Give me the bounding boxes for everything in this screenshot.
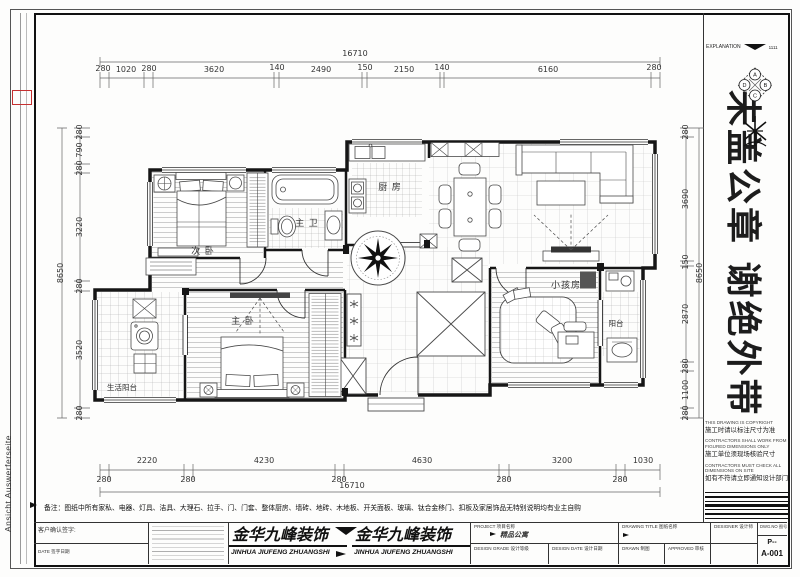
brand-triangle-icon (335, 527, 357, 535)
brand-name-en-2: JINHUA JIUFENG ZHUANGSHI (354, 550, 453, 557)
design-grade-label: DESIGN GRADE 设计等级 (474, 547, 529, 552)
compass-letter-d: D (743, 83, 747, 89)
dim-label: 4630 (412, 457, 432, 465)
drawing-title-label: DRAWING TITLE 图纸名称 (622, 525, 677, 530)
dim-label: 2150 (394, 66, 414, 74)
note-cn: 施工时请以标注尺寸为准 (705, 427, 788, 435)
orientation-diamond: A B C D (738, 68, 772, 102)
dim-label: 790 (76, 142, 84, 157)
room-label-master: 主 卧 (231, 317, 255, 326)
dim-label: 6160 (538, 66, 558, 74)
room-label-balcony: 阳台 (609, 320, 624, 328)
compass-letter-c: C (753, 94, 757, 100)
remark-triangle-icon (30, 502, 37, 508)
dim-label: 3200 (552, 457, 572, 465)
dim-label: 280 (96, 476, 111, 484)
designer-label: DESIGNER 设计师 (714, 525, 753, 530)
dwgno-value-2: A-001 (761, 549, 783, 558)
brand-name-cn-2: 金华九峰装饰 (355, 527, 451, 543)
client-sign-label: 客户确认签字: (38, 528, 76, 534)
dim-label: 280 (646, 64, 661, 72)
drawing-sheet: Ansicht Auswerferseite 未盖公章 谢绝外带 (0, 0, 800, 577)
explanation-code: 1111 (769, 45, 778, 50)
dim-label: 280 (682, 358, 690, 373)
date-label: DATE 签字日期 (38, 550, 70, 555)
approved-label: APPROVED 审核 (668, 547, 704, 552)
project-value: 精品公寓 (500, 532, 528, 539)
dim-label: 280 (95, 65, 110, 73)
note-en: CONTRACTORS MUST CHECK ALL DIMENSIONS ON… (705, 463, 788, 474)
dim-label: 280 (180, 476, 195, 484)
room-label-service-balcony: 生活阳台 (107, 384, 137, 392)
dim-label: 3520 (76, 340, 84, 360)
dim-label: 280 (682, 124, 690, 139)
drawing-title-triangle-icon (623, 533, 629, 537)
project-label: PROJECT 项目名称 (474, 525, 515, 530)
floor-plan-drawing: A B C D (0, 0, 800, 577)
project-triangle-icon (490, 532, 496, 536)
dim-label: 280 (76, 278, 84, 293)
room-label-bath: 主 卫 (295, 219, 319, 228)
dim-label: 1030 (633, 457, 653, 465)
dim-label: 280 (76, 160, 84, 175)
dim-label: 150 (682, 254, 690, 269)
dim-label: 2220 (137, 457, 157, 465)
explanation-label: EXPLANATION (706, 44, 741, 50)
compass-letter-a: A (753, 73, 757, 79)
note-en: CONTRACTORS SHALL WORK FROM FIGURED DIME… (705, 438, 788, 449)
revision-bars (705, 492, 788, 521)
explanation-header: EXPLANATION 1111 (706, 44, 786, 50)
dim-label: 280 (682, 405, 690, 420)
dim-label: 1020 (116, 66, 136, 74)
dim-label: 2490 (311, 66, 331, 74)
dim-label: 140 (434, 64, 449, 72)
brand-swoosh-icon (336, 551, 346, 557)
dim-label: 3620 (204, 66, 224, 74)
dim-label: 280 (76, 405, 84, 420)
dim-label: 4230 (254, 457, 274, 465)
compass-letter-b: B (764, 83, 768, 89)
dim-label: 280 (141, 65, 156, 73)
fine-print-block (152, 526, 224, 560)
dim-label: 3220 (76, 217, 84, 237)
room-label-kids: 小孩房 (551, 281, 581, 290)
brand-name-cn-1: 金华九峰装饰 (232, 527, 328, 543)
dim-label: 280 (612, 476, 627, 484)
dwgno-label: DWG.NO 图号 (760, 525, 787, 529)
room-label-bedroom2: 次 卧 (191, 247, 215, 256)
brand-name-en-1: JINHUA JIUFENG ZHUANGSHI (231, 550, 330, 557)
legend-symbol (744, 116, 766, 146)
dim-left-total: 8650 (57, 263, 65, 283)
design-date-label: DESIGN DATE 设计日期 (552, 547, 602, 552)
room-label-kitchen: 厨 房 (378, 183, 402, 192)
dwgno-value-1: P-- (767, 539, 776, 546)
dim-label: 280 (496, 476, 511, 484)
dim-top-total: 16710 (342, 50, 367, 58)
dim-label: 3690 (682, 189, 690, 209)
note-en: THIS DRAWING IS COPYRIGHT (705, 420, 788, 426)
drawn-label: DRAWN 制图 (622, 547, 650, 552)
dim-bottom-total: 16710 (339, 482, 364, 490)
triangle-icon (744, 44, 766, 50)
dim-label: 150 (357, 64, 372, 72)
note-cn: 如有不符请立即通知设计部门 (705, 475, 788, 483)
note-cn: 施工单位须现场核验尺寸 (705, 451, 788, 459)
service-balcony-fixtures (131, 299, 158, 373)
right-panel-notes: THIS DRAWING IS COPYRIGHT 施工时请以标注尺寸为准 CO… (705, 420, 788, 487)
dim-right-total: 8650 (696, 263, 704, 283)
dim-label: 1100 (682, 380, 690, 400)
floor-medallion (351, 231, 405, 285)
remark-note: 备注：图纸中所有家私、电器、灯具、洁具、大理石、拉手、门、门套、整体厨房、墙砖、… (44, 502, 581, 512)
dim-label: 2870 (682, 304, 690, 324)
dim-label: 280 (76, 124, 84, 139)
dim-label: 140 (269, 64, 284, 72)
